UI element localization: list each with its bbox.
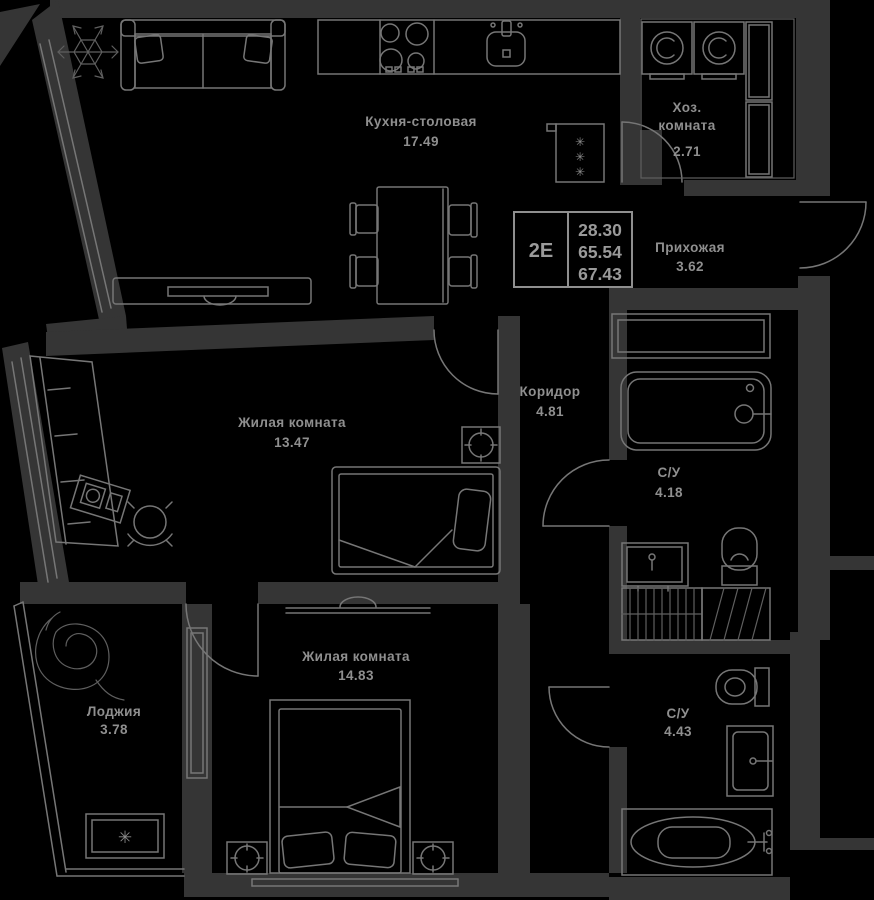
unit-legend: 2Е 28.30 65.54 67.43 (514, 212, 632, 287)
utility-name-1: Хоз. (673, 100, 702, 115)
wall-facade-upper (32, 0, 126, 324)
room-label-loggia: Лоджия 3.78 (87, 704, 141, 737)
kitchen-sink-icon (487, 21, 525, 66)
bathtub-2-icon (622, 809, 772, 875)
dining-chairs-icon (350, 203, 477, 288)
dining-table-icon (377, 187, 448, 304)
wall-living-bedroom-b (258, 582, 498, 604)
toilet-1-icon (722, 528, 757, 585)
wall-corridor-right-3 (609, 747, 627, 873)
corridor-area: 4.81 (536, 404, 564, 419)
room-label-kitchen: Кухня-столовая 17.49 (365, 114, 477, 149)
windows (12, 40, 458, 886)
desk-icon (70, 475, 130, 523)
kitchen-name: Кухня-столовая (365, 114, 477, 129)
nightstand-lamp-1-icon (462, 427, 500, 463)
plant-decor-icon (36, 612, 124, 700)
bath2-door-icon (549, 687, 609, 747)
wall-utility-step (640, 130, 662, 185)
washing-machine-2-icon (694, 22, 744, 79)
toilet-2-icon (716, 668, 769, 706)
nightstand-lamp-2-icon (227, 842, 267, 874)
unit-area-total: 67.43 (578, 264, 622, 284)
bath1-area: 4.18 (655, 485, 683, 500)
wall-bath-separation (609, 640, 790, 654)
wall-right-mid (798, 276, 830, 640)
tv-console-icon (113, 278, 311, 305)
wall-right-step (830, 556, 874, 570)
wall-top-left-wedge (0, 4, 40, 66)
double-bed-icon (270, 700, 410, 873)
room-label-living1: Жилая комната 13.47 (237, 415, 346, 450)
living2-name: Жилая комната (301, 649, 410, 664)
wall-right-bottom (790, 632, 820, 840)
wall-kitchen-utility (620, 0, 640, 185)
sofa-icon (121, 20, 285, 90)
floor-plan: ✳ ✳ ✳ (0, 0, 874, 900)
bath2-name: С/У (666, 706, 689, 721)
room-label-utility: Хоз. комната 2.71 (658, 100, 715, 159)
utility-name-2: комната (658, 118, 715, 133)
wall-corridor-left (498, 316, 520, 604)
wall-bottom-bath (609, 877, 790, 900)
storage-cabinet-icon (746, 22, 772, 177)
room-label-living2: Жилая комната 14.83 (301, 649, 410, 683)
wall-bottom-right-step (790, 838, 874, 850)
bath2-area: 4.43 (664, 724, 692, 739)
loggia-area: 3.78 (100, 722, 128, 737)
hallway-name: Прихожая (655, 240, 725, 255)
wall-bath1-top (609, 288, 798, 310)
room-label-corridor: Коридор 4.81 (520, 384, 581, 419)
unit-type: 2Е (529, 240, 553, 262)
bath1-name: С/У (657, 465, 680, 480)
kitchen-living-door-icon (434, 330, 498, 394)
ac-unit-icon: ✳ (86, 814, 164, 858)
shower-shelf-icon (612, 314, 770, 358)
utility-room-outline (641, 19, 794, 178)
entry-door-icon (800, 202, 866, 268)
bathtub-1-icon (621, 372, 771, 450)
nightstand-lamp-3-icon (413, 842, 453, 874)
living2-area: 14.83 (338, 668, 374, 683)
hallway-area: 3.62 (676, 259, 704, 274)
living1-name: Жилая комната (237, 415, 346, 430)
unit-area-living: 28.30 (578, 220, 622, 240)
room-label-bath2: С/У 4.43 (664, 706, 692, 739)
washbasin-1-icon (622, 543, 688, 591)
wall-bedroom-right (498, 604, 530, 873)
wall-facade-lower (2, 342, 70, 598)
wall-corridor-right-2 (609, 526, 627, 648)
living1-area: 13.47 (274, 435, 310, 450)
room-label-hallway: Прихожая 3.62 (655, 240, 725, 274)
fridge-snowflake-3: ✳ (575, 165, 585, 179)
washbasin-2-icon (727, 726, 773, 796)
wall-right-top (796, 13, 830, 185)
washing-machine-1-icon (642, 22, 692, 79)
wall-living-bedroom-a (20, 582, 186, 604)
office-chair-icon (128, 502, 172, 546)
fridge-snowflake-1: ✳ (575, 135, 585, 149)
room-label-bath1: С/У 4.18 (655, 465, 683, 500)
loggia-name: Лоджия (87, 704, 141, 719)
kitchen-area: 17.49 (403, 134, 439, 149)
vent-shaft-icon (622, 588, 770, 640)
corridor-name: Коридор (520, 384, 581, 399)
fridge-icon: ✳ ✳ ✳ (547, 124, 604, 182)
floor-plan-svg: ✳ ✳ ✳ (0, 0, 874, 900)
single-bed-icon (332, 467, 500, 574)
fridge-snowflake-2: ✳ (575, 150, 585, 164)
utility-area: 2.71 (673, 144, 701, 159)
kitchen-counter-icon (318, 20, 620, 74)
bath1-door-icon (543, 460, 609, 526)
wall-top (50, 0, 830, 18)
stove-icon (380, 23, 428, 72)
wall-bottom-bedroom (184, 873, 609, 897)
unit-area-main: 65.54 (578, 242, 622, 262)
ac-snowflake: ✳ (118, 828, 132, 848)
